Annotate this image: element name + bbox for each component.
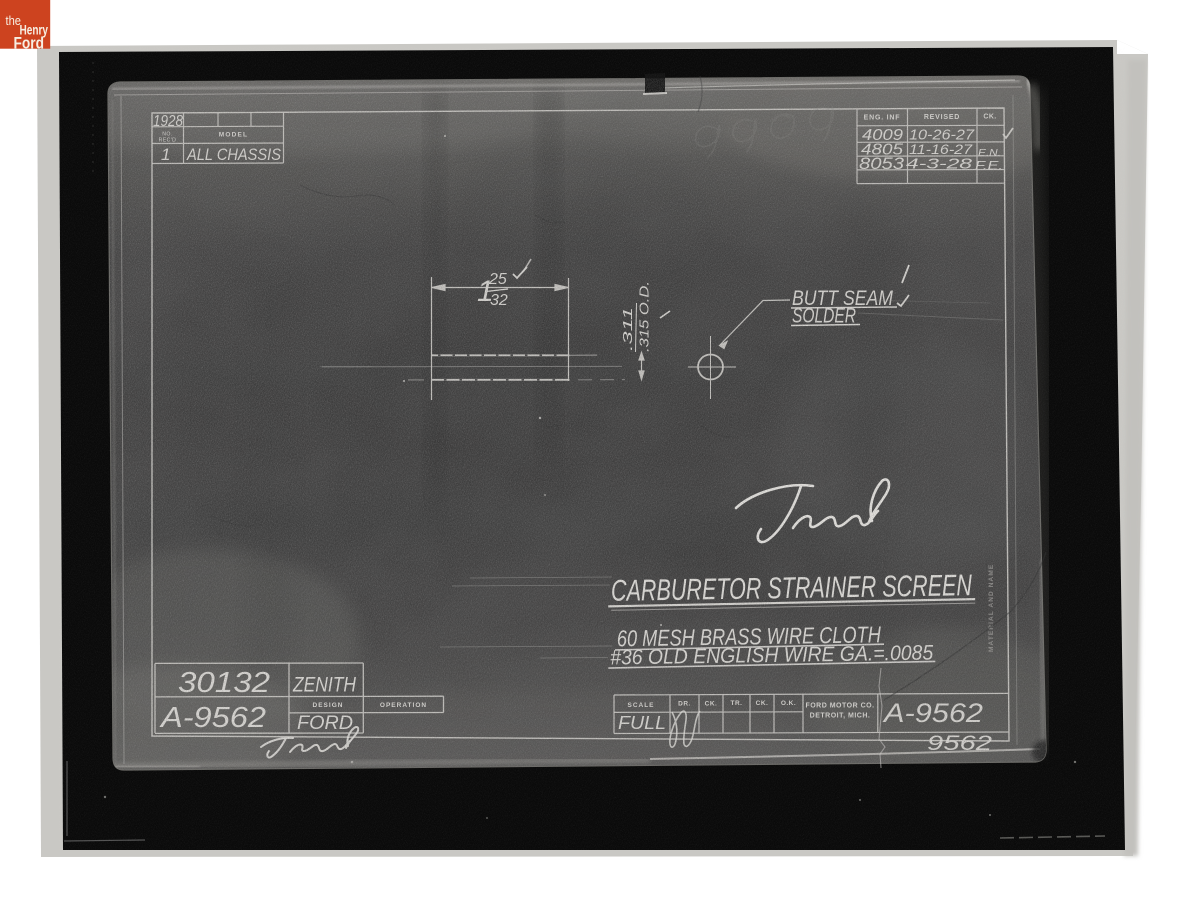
svg-text:Ford: Ford: [14, 34, 45, 52]
